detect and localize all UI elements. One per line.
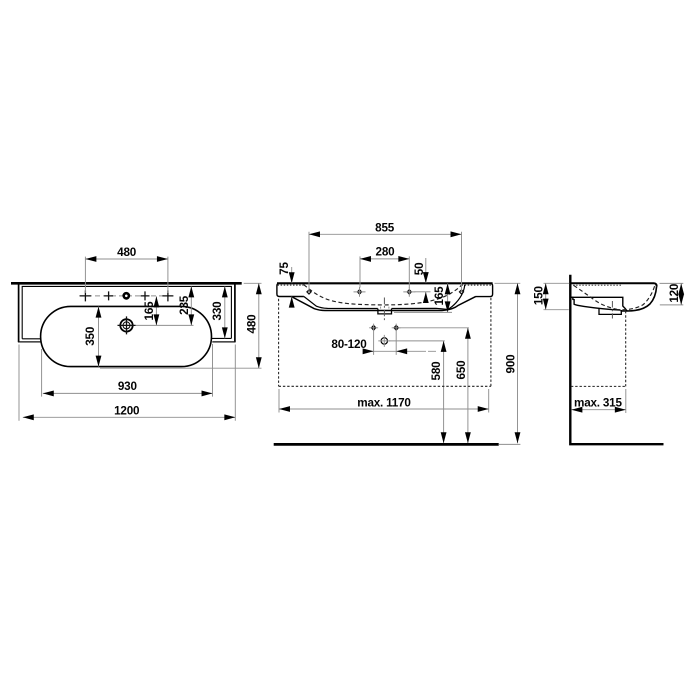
- svg-text:max. 315: max. 315: [574, 397, 622, 410]
- svg-text:650: 650: [455, 360, 468, 380]
- svg-text:120: 120: [668, 283, 681, 303]
- svg-text:75: 75: [278, 262, 291, 275]
- svg-text:165: 165: [143, 301, 156, 321]
- svg-text:50: 50: [413, 262, 426, 275]
- svg-text:235: 235: [178, 295, 191, 315]
- svg-text:900: 900: [504, 354, 517, 374]
- svg-text:855: 855: [375, 222, 395, 235]
- svg-text:1200: 1200: [114, 404, 140, 417]
- svg-text:350: 350: [84, 326, 97, 346]
- svg-text:max. 1170: max. 1170: [357, 397, 411, 410]
- svg-text:280: 280: [376, 245, 396, 258]
- svg-text:580: 580: [430, 361, 443, 381]
- svg-text:480: 480: [117, 246, 137, 259]
- svg-text:930: 930: [118, 380, 138, 393]
- svg-text:80-120: 80-120: [331, 338, 367, 351]
- svg-text:330: 330: [211, 301, 224, 321]
- svg-text:165: 165: [433, 286, 446, 306]
- svg-text:480: 480: [245, 314, 258, 334]
- svg-text:150: 150: [533, 286, 546, 306]
